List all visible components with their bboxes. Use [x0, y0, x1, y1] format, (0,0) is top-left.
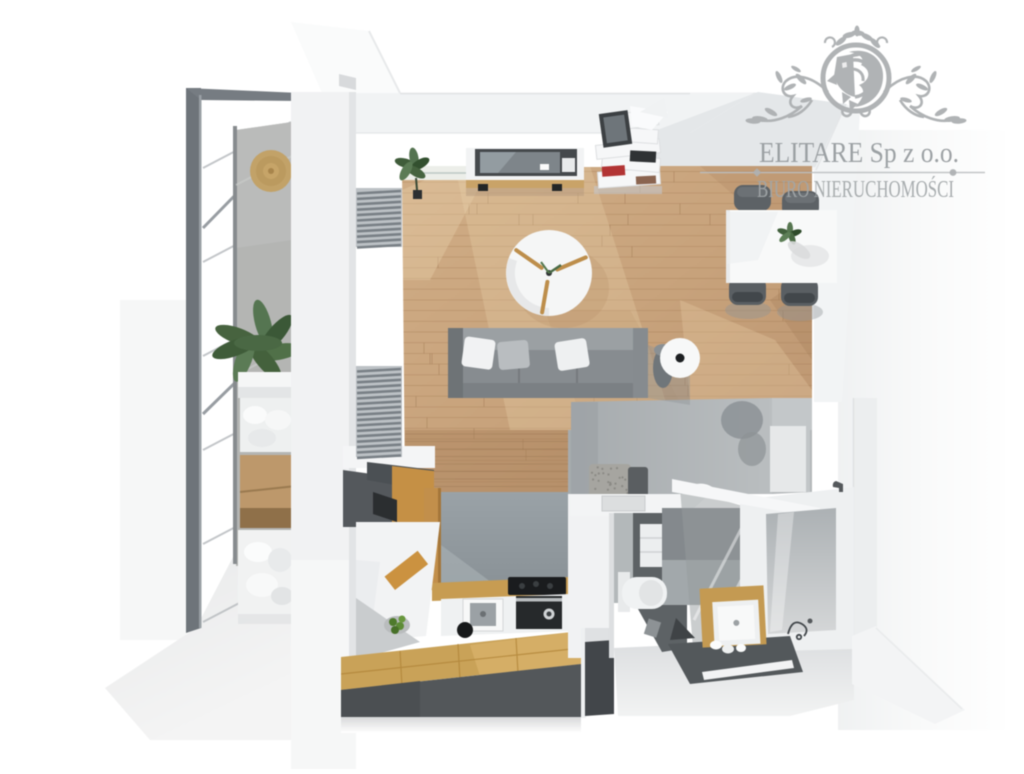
svg-text:BIURO NIERUCHOMOŚCI: BIURO NIERUCHOMOŚCI: [757, 176, 954, 203]
svg-text:ELITARE Sp z o.o.: ELITARE Sp z o.o.: [759, 137, 959, 169]
